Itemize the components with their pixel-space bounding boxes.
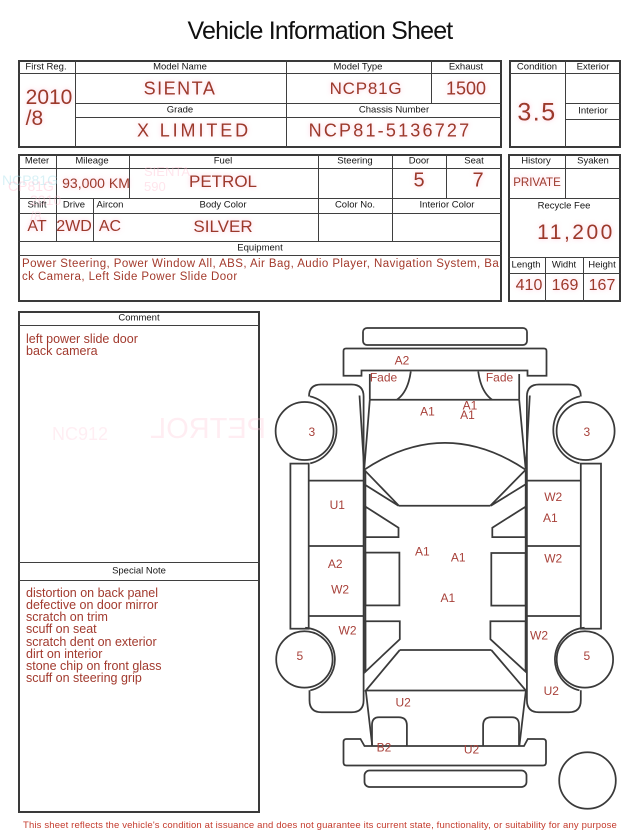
svg-text:A1: A1: [451, 551, 466, 565]
svg-text:5: 5: [584, 649, 591, 663]
svg-text:U2: U2: [464, 743, 480, 757]
svg-text:A2: A2: [328, 557, 343, 571]
svg-text:B2: B2: [377, 741, 392, 755]
svg-text:Fade: Fade: [370, 371, 398, 385]
svg-text:Fade: Fade: [486, 371, 514, 385]
svg-text:A1: A1: [440, 591, 455, 605]
svg-text:W2: W2: [339, 624, 357, 638]
svg-text:U2: U2: [544, 684, 560, 698]
svg-text:A1: A1: [420, 405, 435, 419]
svg-text:5: 5: [296, 649, 303, 663]
svg-text:A1: A1: [460, 408, 475, 422]
svg-text:W2: W2: [331, 583, 349, 597]
svg-text:W2: W2: [544, 552, 562, 566]
svg-text:A2: A2: [395, 354, 410, 368]
svg-text:A1: A1: [415, 545, 430, 559]
svg-text:3: 3: [308, 425, 315, 439]
svg-text:U2: U2: [396, 696, 412, 710]
svg-text:A1: A1: [543, 511, 558, 525]
svg-text:U1: U1: [330, 498, 346, 512]
svg-text:3: 3: [584, 425, 591, 439]
svg-text:W2: W2: [544, 490, 562, 504]
svg-text:W2: W2: [530, 629, 548, 643]
